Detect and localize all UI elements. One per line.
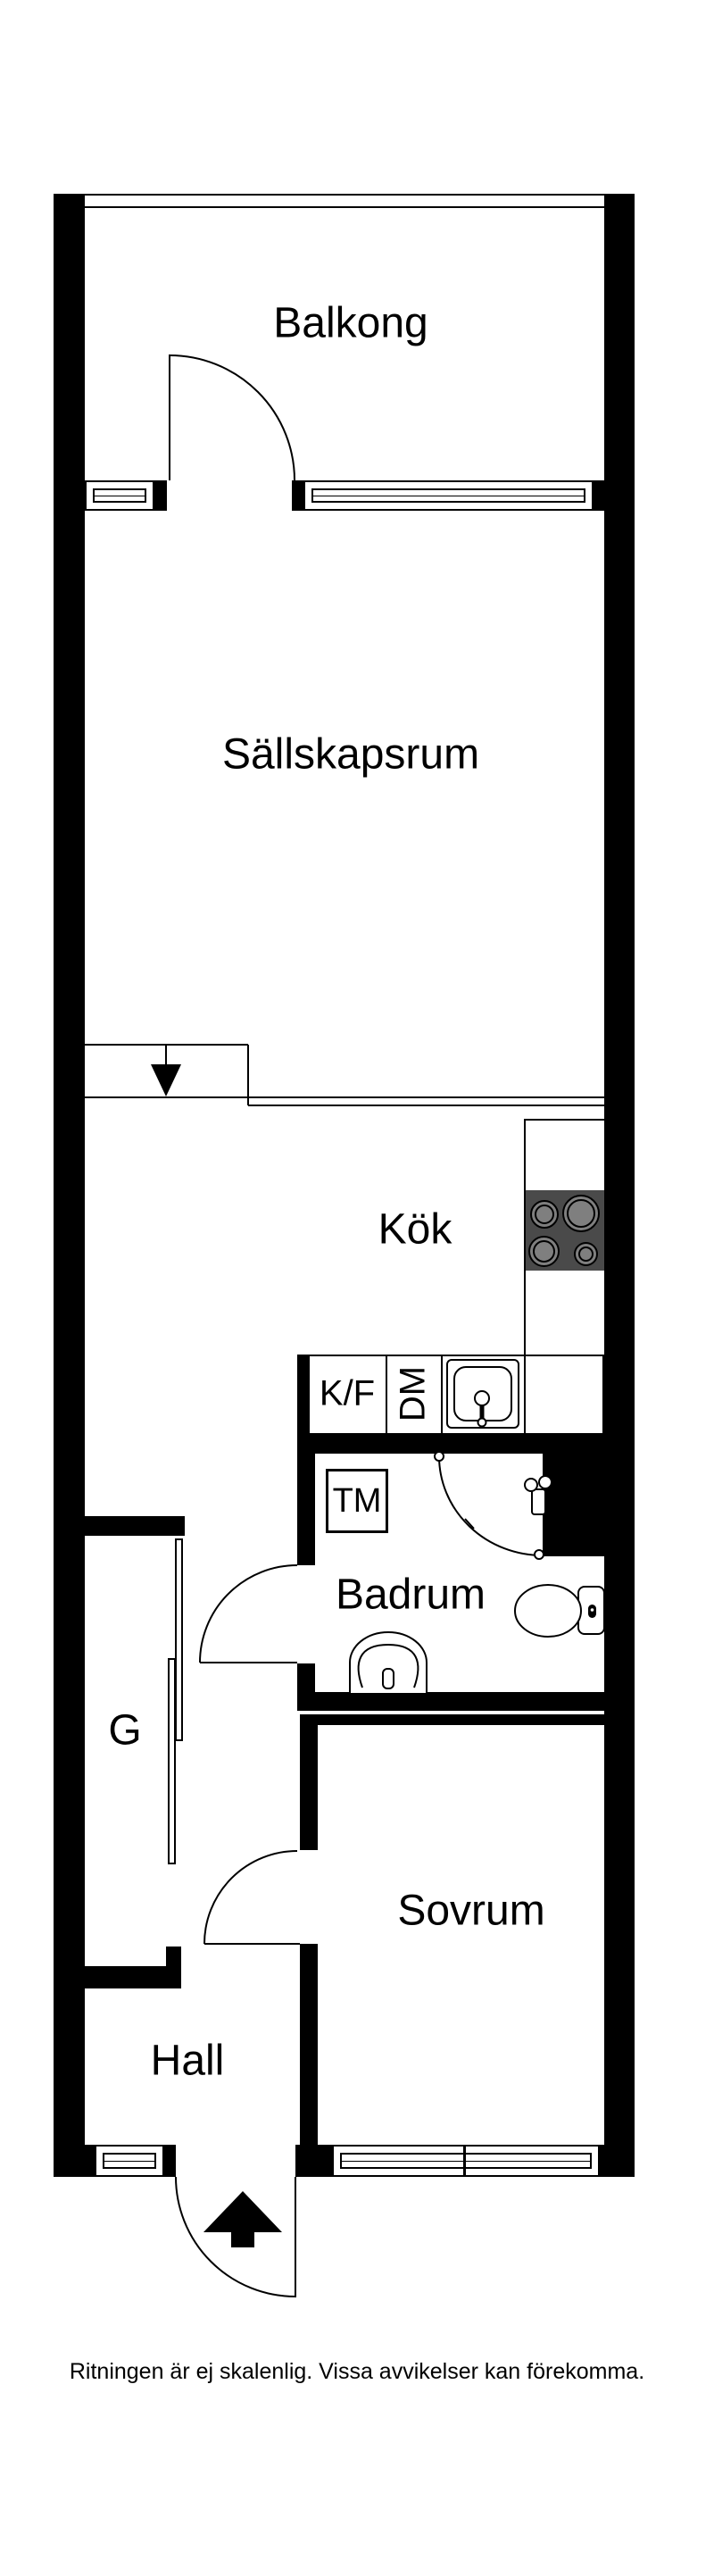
- entrance-door-arc: [176, 2177, 295, 2297]
- wall-bottom-3: [295, 2145, 332, 2177]
- window-pane: [103, 2153, 156, 2169]
- toilet-icon: [515, 1585, 604, 1637]
- footer-disclaimer: Ritningen är ej skalenlig. Vissa avvikel…: [0, 2359, 714, 2385]
- burner-icon: [562, 1195, 600, 1232]
- wall-sovrum-top: [318, 1714, 604, 1725]
- wall-right-outer: [604, 194, 635, 2177]
- wall-bottom-2: [164, 2145, 176, 2177]
- window-hall: [95, 2145, 164, 2177]
- washbasin-icon: [350, 1632, 427, 1693]
- window-pane: [340, 2153, 592, 2169]
- floor-plan-canvas: TM: [0, 0, 714, 2576]
- window-sovrum: [332, 2145, 600, 2177]
- sliding-door-leaf-1: [175, 1538, 183, 1741]
- wall-pier-balcony-2: [292, 480, 303, 511]
- room-label-sovrum: Sovrum: [397, 1887, 544, 1936]
- wall-bottom-4: [600, 2145, 635, 2177]
- window-pane: [93, 488, 146, 504]
- shower-curtain-arc: [439, 1456, 543, 1555]
- duct-shower: [543, 1449, 604, 1556]
- wall-hall-stub-post: [166, 1947, 181, 1988]
- kitchen-sink-basin: [453, 1366, 512, 1421]
- wall-bottom-1: [54, 2145, 95, 2177]
- wall-hall-stub-bar: [85, 1966, 166, 1988]
- dishwasher-label: DM: [394, 1366, 434, 1421]
- window-balcony-right: [303, 480, 594, 511]
- wall-sovrum-left-upper: [300, 1714, 318, 1850]
- stove-icon: [525, 1190, 604, 1271]
- wall-pier-balcony-1: [154, 480, 167, 511]
- burner-icon: [530, 1200, 559, 1229]
- burner-icon: [528, 1236, 560, 1267]
- badrum-door-arc: [200, 1565, 297, 1663]
- burner-icon: [574, 1242, 598, 1266]
- wall-badrum-bottom: [297, 1692, 604, 1711]
- room-label-sallskapsrum: Sällskapsrum: [222, 730, 479, 779]
- room-label-garderob: G: [108, 1706, 141, 1755]
- room-label-hall: Hall: [151, 2037, 225, 2086]
- sliding-door-leaf-2: [168, 1658, 176, 1864]
- shower-curtain-tick: [465, 1519, 474, 1529]
- step-arrow-icon: [151, 1045, 181, 1096]
- window-sovrum-divider: [463, 2145, 466, 2177]
- sovrum-door-arc: [204, 1851, 297, 1944]
- room-label-balkong: Balkong: [273, 299, 428, 348]
- window-pane: [311, 488, 585, 504]
- wall-closet-stub: [85, 1516, 185, 1536]
- washing-machine-label: TM: [333, 1482, 382, 1521]
- kitchen-sink-icon: [446, 1359, 519, 1429]
- wall-pier-balcony-3: [594, 480, 604, 511]
- room-label-kok: Kök: [378, 1205, 452, 1255]
- cabinet-divider-3: [524, 1355, 526, 1435]
- balcony-door-arc: [170, 355, 295, 480]
- wall-left-outer: [54, 194, 85, 2177]
- window-balcony-left: [85, 480, 154, 511]
- cabinet-divider-1: [386, 1355, 387, 1435]
- washing-machine-box: TM: [326, 1469, 388, 1533]
- room-label-badrum: Badrum: [336, 1571, 486, 1620]
- entrance-arrow-icon: [203, 2191, 282, 2247]
- step-marker-lines: [85, 1045, 604, 1105]
- balcony-railing-line: [85, 195, 604, 207]
- wall-sovrum-left-lower: [300, 1944, 318, 2177]
- wall-cabinet-stub: [297, 1355, 308, 1435]
- wall-badrum-left-upper: [297, 1454, 315, 1565]
- cabinet-divider-2: [441, 1355, 443, 1435]
- fridge-freezer-label: K/F: [320, 1374, 375, 1414]
